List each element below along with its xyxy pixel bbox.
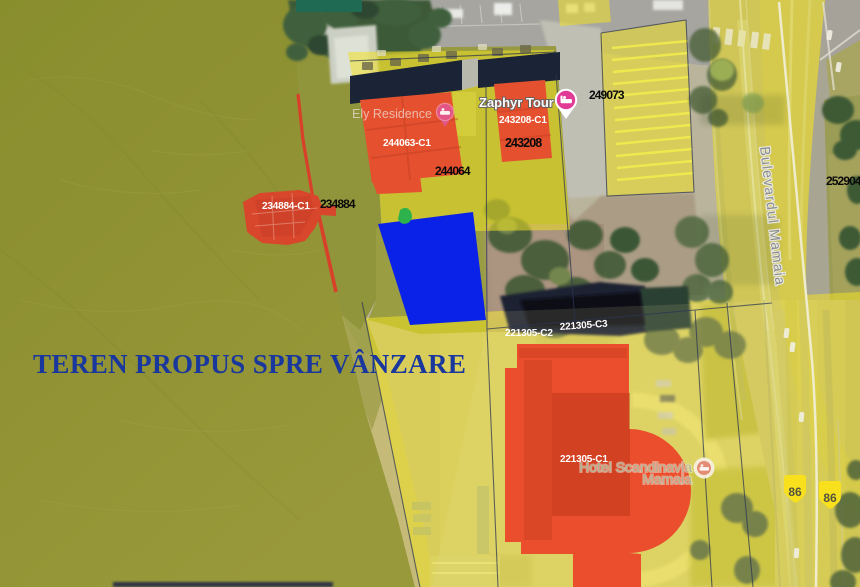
svg-text:243208-C1: 243208-C1 — [499, 115, 547, 126]
svg-text:234884: 234884 — [320, 197, 356, 211]
svg-text:244064: 244064 — [435, 164, 471, 178]
svg-text:244063-C1: 244063-C1 — [383, 138, 431, 149]
svg-text:243208: 243208 — [505, 136, 542, 150]
svg-text:252904: 252904 — [826, 174, 860, 188]
svg-text:234884-C1: 234884-C1 — [262, 201, 310, 212]
svg-text:221305-C2: 221305-C2 — [505, 328, 553, 339]
svg-text:Zaphyr Tour: Zaphyr Tour — [479, 95, 554, 110]
svg-text:86: 86 — [788, 485, 802, 499]
svg-text:249073: 249073 — [589, 88, 625, 102]
svg-text:TEREN PROPUS SPRE VÂNZARE: TEREN PROPUS SPRE VÂNZARE — [33, 349, 466, 379]
svg-text:Ely Residence: Ely Residence — [352, 107, 432, 121]
svg-text:86: 86 — [823, 491, 837, 505]
svg-text:Mamaia: Mamaia — [642, 471, 692, 487]
svg-text:221305-C1: 221305-C1 — [560, 454, 608, 465]
